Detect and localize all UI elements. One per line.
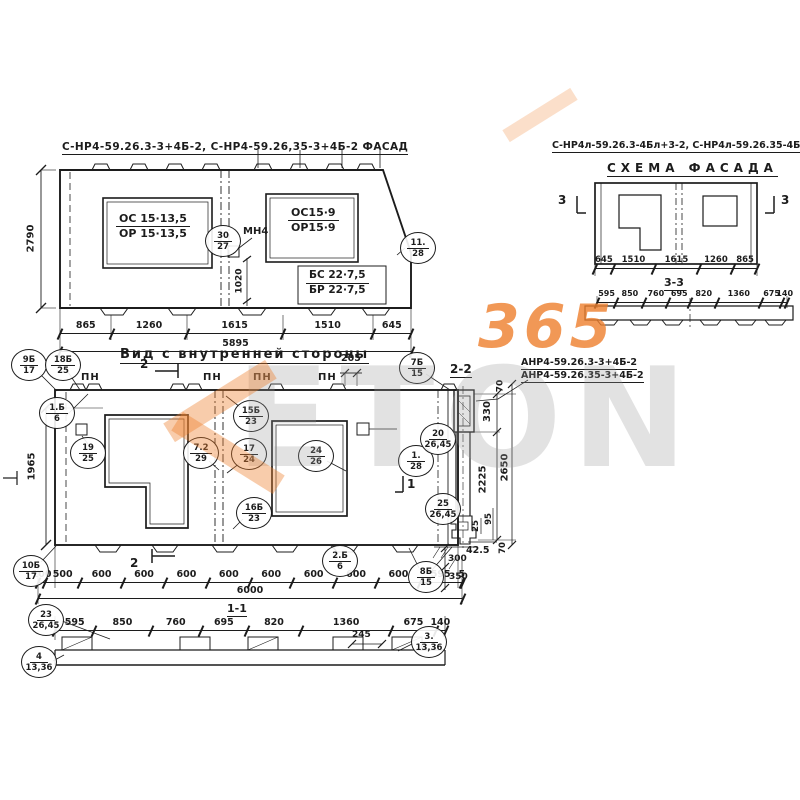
section-1-1-dim-row: 595 850 760 695 820 1360 675 140 — [55, 630, 445, 631]
schema-subtitle: СХЕМА ФАСАДА — [607, 161, 778, 177]
facade-opening-left-label: ОС 15·13,5 ОР 15·13,5 — [116, 212, 190, 242]
callout-sheet: 24 — [243, 455, 255, 465]
callout-3-1336: 3. 13,36 — [411, 626, 447, 658]
callout-sheet: 17 — [23, 366, 35, 376]
drawing-linework — [0, 0, 800, 800]
callout-position: 16Б — [242, 503, 266, 515]
callout-position: 10Б — [19, 561, 43, 573]
anchor-dim-1020: 1020 — [235, 268, 245, 293]
section-3-mark-right: 3 — [781, 193, 789, 207]
callout-position: 15Б — [239, 406, 263, 418]
callout-4-1336: 4 13,36 — [21, 646, 57, 678]
dim-label: 1615 — [221, 320, 247, 331]
mount-label: МН4 — [243, 226, 268, 237]
callout-11-28: 11. 28 — [400, 232, 436, 264]
callout-sheet: 6 — [54, 414, 60, 424]
dim-350: 350 — [449, 572, 468, 582]
schema-title: С-НР4л-59.26.3-4Бл+3-2, С-НР4л-59.26.35-… — [552, 140, 800, 153]
dim-label: 1510 — [622, 255, 646, 265]
callout-position: 19 — [79, 443, 97, 455]
callout-sheet: 23 — [245, 417, 257, 427]
dim-25: 25 — [471, 520, 481, 532]
section-3-3-dim-row: 595 850 760 695 820 1360 675 140 — [597, 302, 787, 303]
schema-dim-row: 645 1510 1615 1260 865 — [595, 268, 757, 269]
dim-total-label: 6000 — [237, 585, 263, 596]
dim-label: 675 — [403, 617, 423, 628]
callout-30-27: 30 27 — [205, 225, 241, 257]
callout-17-24: 17 24 — [231, 438, 267, 470]
callout-24-26: 24 26 — [298, 440, 334, 472]
callout-sheet: 26 — [310, 457, 322, 467]
callout-position: 24 — [307, 446, 325, 458]
dim-label: 600 — [134, 569, 154, 580]
section-2-2-label: 2-2 — [450, 362, 472, 378]
callout-position: 2.Б — [329, 551, 351, 563]
dim-2225: 2225 — [477, 466, 488, 494]
callout-15b-23: 15Б 23 — [233, 400, 269, 432]
callout-position: 30 — [214, 231, 232, 243]
callout-2b-6: 2.Б 6 — [322, 545, 358, 577]
dim-label: 1510 — [314, 320, 340, 331]
callout-sheet: 13,36 — [26, 663, 53, 673]
dim-label: 865 — [736, 255, 754, 265]
dim-label: 865 — [76, 320, 96, 331]
opening-type-label: ОС 15·13,5 — [116, 212, 190, 227]
callout-position: 9Б — [20, 355, 38, 367]
section-1-1-label: 1-1 — [227, 602, 247, 617]
dim-label: 645 — [595, 255, 613, 265]
section-1-mark: 1 — [407, 477, 415, 491]
callout-sheet: 13,36 — [416, 643, 443, 653]
inner-total-dim-row: 6000 — [38, 598, 462, 599]
dim-label: 600 — [304, 569, 324, 580]
opening-type-label: БС 22·7,5 — [306, 269, 369, 284]
callout-sheet: 23 — [248, 514, 260, 524]
opening-type-label: ОР15·9 — [288, 221, 339, 235]
callout-sheet: 26,45 — [430, 510, 457, 520]
callout-1b-6: 1.Б 6 — [39, 397, 75, 429]
callout-sheet: 25 — [57, 366, 69, 376]
dim-330: 330 — [482, 401, 493, 422]
callout-position: 20 — [429, 429, 447, 441]
dim-95: 95 — [484, 513, 494, 525]
dim-label: 600 — [176, 569, 196, 580]
callout-position: 8Б — [417, 567, 435, 579]
dim-label: 140 — [776, 289, 793, 298]
callout-position: 7Б — [408, 358, 426, 370]
dim-label: 850 — [113, 617, 133, 628]
pn-mark: ПН — [253, 372, 272, 383]
facade-dim-row: 865 1260 1615 1510 645 — [60, 333, 411, 334]
section-2-mark-top: 2 — [140, 357, 148, 371]
opening-type-label: ОС15·9 — [288, 206, 339, 221]
callout-position: 4 — [30, 652, 48, 664]
callout-25-2645: 25 26,45 — [425, 493, 461, 525]
dim-label: 600 — [261, 569, 281, 580]
section-2-mark-bottom: 2 — [130, 556, 138, 570]
panel-code-2: АНР4-59.26.35-3+4Б-2 — [521, 370, 644, 383]
dim-label: 645 — [382, 320, 402, 331]
callout-9b-17: 9Б 17 — [11, 349, 47, 381]
dim-label: 820 — [695, 289, 712, 298]
inner-dim-row: 100 500 600 600 600 600 600 600 600 600 … — [38, 582, 462, 583]
dim-70-bottom: 70 — [498, 542, 508, 554]
callout-18b-25: 18Б 25 — [45, 349, 81, 381]
callout-position: 25 — [434, 499, 452, 511]
dim-label: 1360 — [333, 617, 359, 628]
dim-300: 300 — [448, 554, 467, 564]
callout-10b-17: 10Б 17 — [13, 555, 49, 587]
callout-8b-15: 8Б 15 — [408, 561, 444, 593]
dim-42-5: 42.5 — [466, 545, 489, 556]
callout-position: 1.Б — [46, 403, 68, 415]
dim-label: 1260 — [704, 255, 728, 265]
facade-height-dim: 2790 — [25, 225, 36, 253]
callout-position: 3. — [420, 632, 438, 644]
dim-label: 1260 — [136, 320, 162, 331]
dim-label: 820 — [264, 617, 284, 628]
callout-sheet: 28 — [410, 462, 422, 472]
callout-position: 1. — [407, 451, 425, 463]
facade-title: С-НР4-59.26.3-3+4Б-2, С-НР4-59.26,35-3+4… — [62, 141, 408, 155]
callout-position: 11. — [407, 238, 428, 250]
facade-opening-right-label: ОС15·9 ОР15·9 — [288, 206, 339, 236]
inner-view-title: Вид с внутренней стороны — [120, 347, 369, 364]
callout-sheet: 28 — [412, 249, 424, 259]
callout-position: 7.2 — [190, 443, 211, 455]
dim-label: 695 — [214, 617, 234, 628]
dim-label: 600 — [389, 569, 409, 580]
dim-label: 595 — [65, 617, 85, 628]
dim-1965: 1965 — [26, 453, 37, 481]
dim-label: 595 — [598, 289, 615, 298]
facade-balcony-label: БС 22·7,5 БР 22·7,5 — [306, 269, 369, 297]
callout-sheet: 26,45 — [425, 440, 452, 450]
callout-sheet: 15 — [420, 578, 432, 588]
callout-sheet: 26,45 — [33, 621, 60, 631]
pn-mark: ПН — [203, 372, 222, 383]
panel-code-1: АНР4-59.26.3-3+4Б-2 — [521, 357, 637, 370]
dim-label: 1360 — [728, 289, 750, 298]
section-3-mark-left: 3 — [558, 193, 566, 207]
pn-mark: ПН — [81, 372, 100, 383]
dim-label: 600 — [92, 569, 112, 580]
dim-70-top: 70 — [495, 380, 505, 393]
callout-sheet: 15 — [411, 369, 423, 379]
pn-mark: ПН — [318, 372, 337, 383]
dim-label: 850 — [622, 289, 639, 298]
callout-sheet: 6 — [337, 562, 343, 572]
callout-7b-15: 7Б 15 — [399, 352, 435, 384]
callout-sheet: 27 — [217, 242, 229, 252]
callout-position: 23 — [37, 610, 55, 622]
callout-position: 18Б — [51, 355, 75, 367]
dim-label: 1615 — [665, 255, 689, 265]
dim-label: 760 — [166, 617, 186, 628]
callout-7-2-29: 7.2 29 — [183, 437, 219, 469]
dim-245: 245 — [352, 630, 371, 640]
callout-19-25: 19 25 — [70, 437, 106, 469]
callout-position: 17 — [240, 444, 258, 456]
callout-sheet: 25 — [82, 454, 94, 464]
opening-type-label: БР 22·7,5 — [306, 284, 369, 298]
opening-type-label: ОР 15·13,5 — [116, 227, 190, 241]
dim-label: 500 — [53, 569, 73, 580]
dim-205: 205 — [341, 353, 361, 364]
callout-20-2645: 20 26,45 — [420, 423, 456, 455]
callout-sheet: 29 — [195, 454, 207, 464]
callout-sheet: 17 — [25, 572, 37, 582]
drawing-sheet: С-НР4-59.26.3-3+4Б-2, С-НР4-59.26,35-3+4… — [0, 0, 800, 800]
callout-23-2645: 23 26,45 — [28, 604, 64, 636]
dim-label: 600 — [219, 569, 239, 580]
dim-2650: 2650 — [499, 454, 510, 482]
callout-16b-23: 16Б 23 — [236, 497, 272, 529]
section-3-3-label: 3-3 — [664, 276, 684, 291]
dim-label: 760 — [647, 289, 664, 298]
